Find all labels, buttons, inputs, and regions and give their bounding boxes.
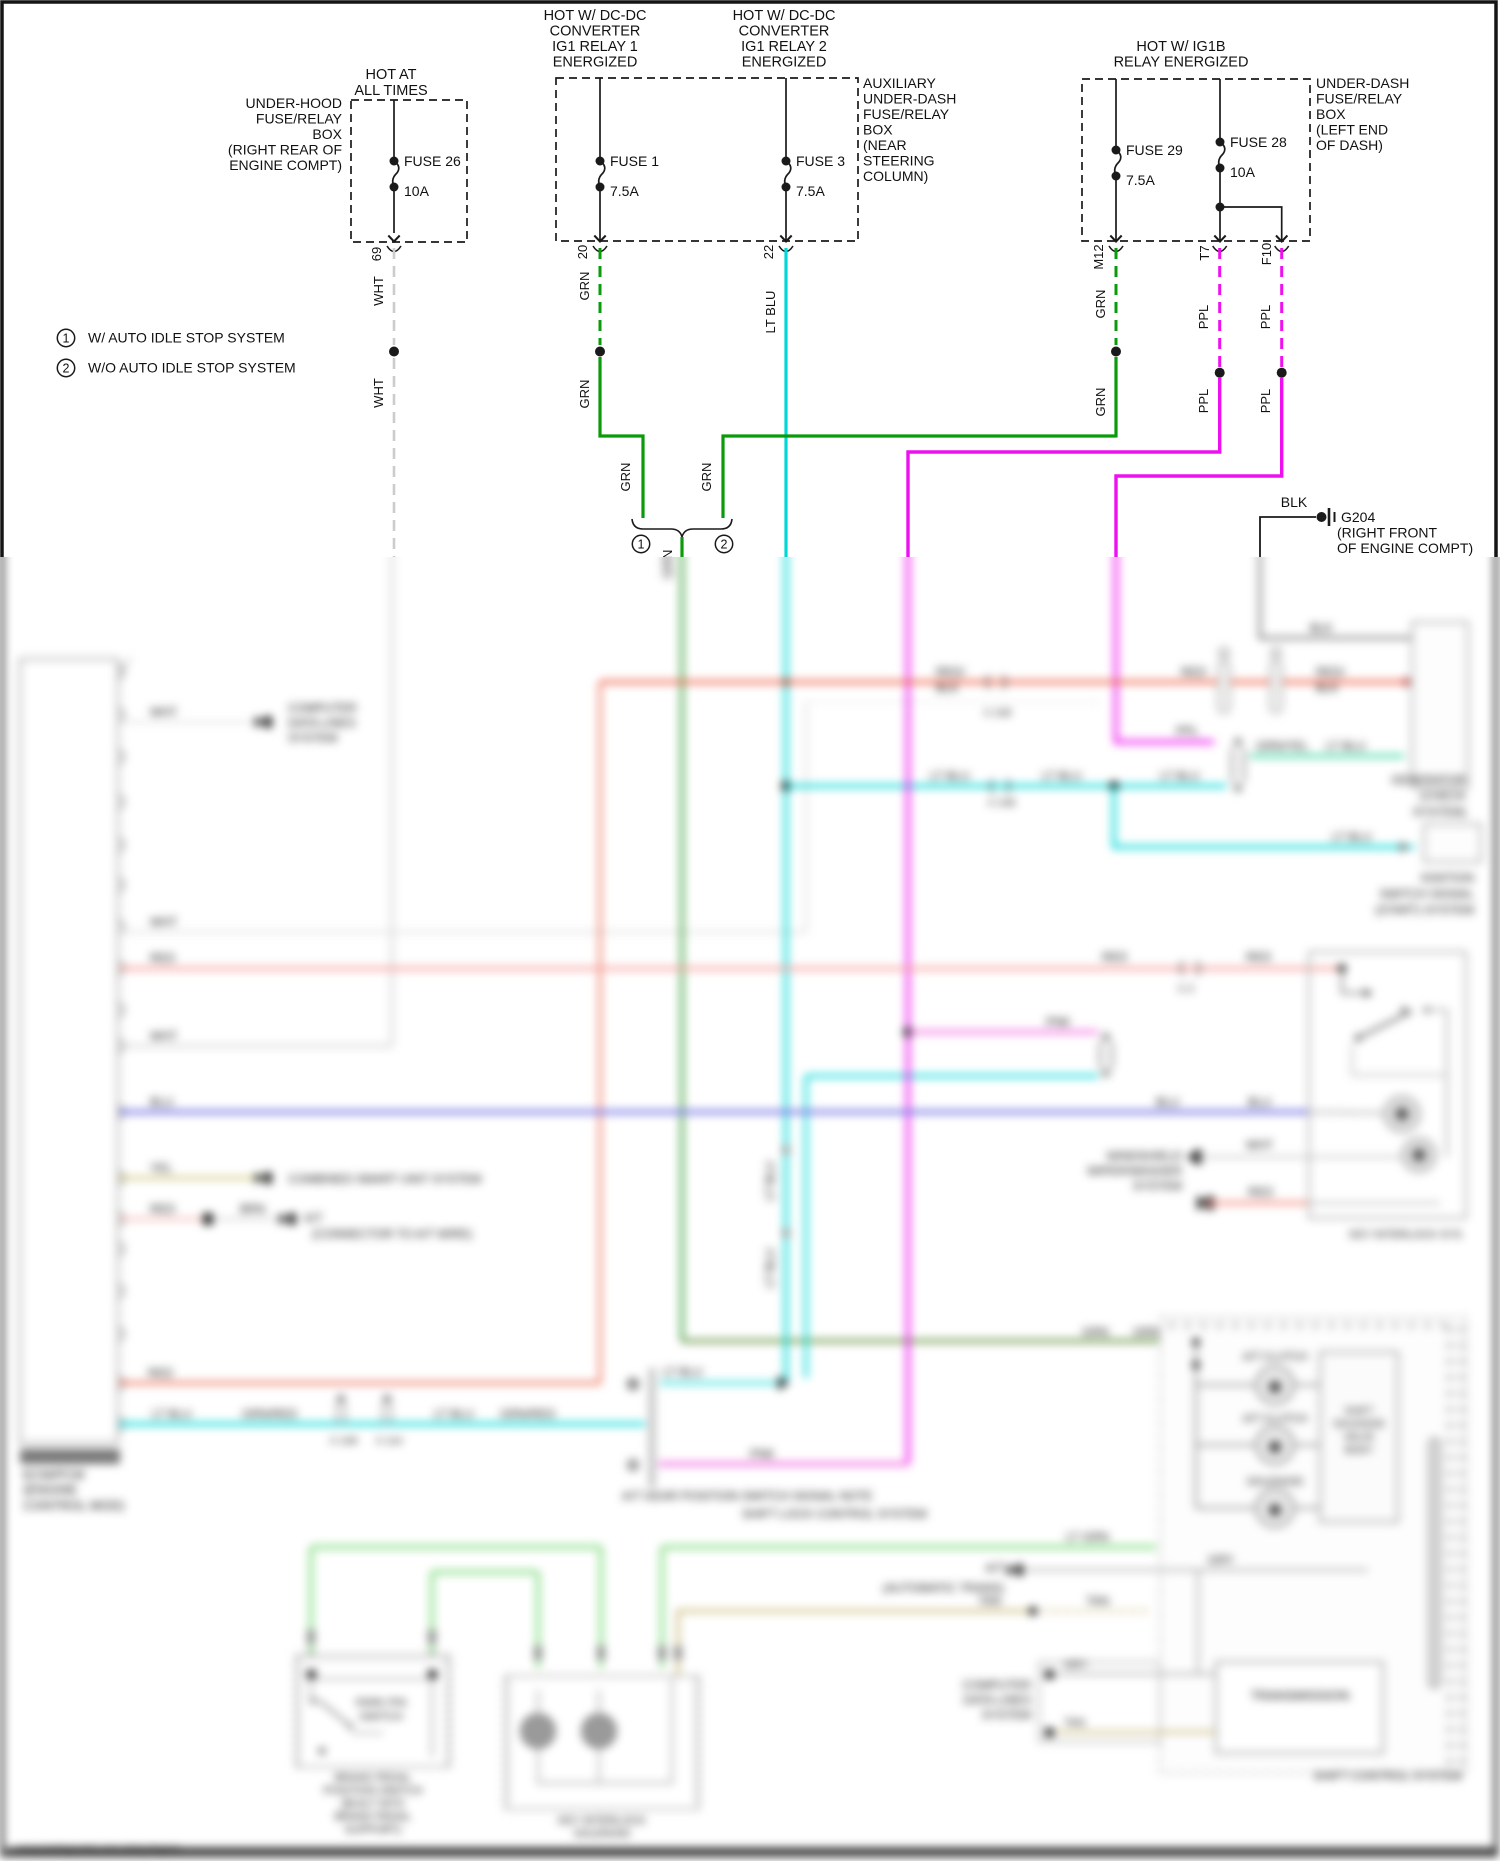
svg-text:HOT W/ IG1B: HOT W/ IG1B bbox=[1136, 39, 1225, 55]
svg-text:HOT W/ DC-DC: HOT W/ DC-DC bbox=[733, 8, 836, 24]
svg-text:ENGINE COMPT): ENGINE COMPT) bbox=[229, 157, 342, 173]
svg-text:KEY INTERLOCK: KEY INTERLOCK bbox=[558, 1815, 646, 1827]
svg-text:WHT: WHT bbox=[150, 705, 178, 719]
svg-text:FUSE 3: FUSE 3 bbox=[796, 153, 845, 169]
svg-text:WHT: WHT bbox=[1246, 1138, 1274, 1152]
svg-text:PPL: PPL bbox=[1176, 724, 1199, 738]
svg-text:WHT: WHT bbox=[150, 915, 178, 929]
svg-text:CONVERTER: CONVERTER bbox=[550, 24, 641, 40]
svg-text:GRN: GRN bbox=[699, 463, 714, 492]
svg-text:GRN: GRN bbox=[1082, 1325, 1109, 1339]
svg-text:SHIFT: SHIFT bbox=[1345, 1406, 1374, 1417]
svg-text:(CONNECTOR TO A/T WIRE): (CONNECTOR TO A/T WIRE) bbox=[312, 1227, 472, 1241]
svg-text:PNK: PNK bbox=[1046, 1015, 1071, 1029]
svg-text:ENERGIZED: ENERGIZED bbox=[553, 55, 638, 71]
svg-text:OF ENGINE COMPT): OF ENGINE COMPT) bbox=[1337, 540, 1473, 556]
svg-text:BOX: BOX bbox=[1316, 106, 1346, 122]
svg-text:GRN: GRN bbox=[660, 550, 675, 557]
svg-text:TAN: TAN bbox=[978, 1594, 1001, 1608]
svg-text:IGNITION: IGNITION bbox=[1421, 871, 1474, 885]
svg-text:SYSTEM: SYSTEM bbox=[288, 731, 337, 745]
svg-text:BLU: BLU bbox=[150, 1095, 173, 1109]
svg-text:COLUMN): COLUMN) bbox=[863, 168, 928, 184]
svg-text:7.5A: 7.5A bbox=[796, 183, 825, 199]
svg-text:RED: RED bbox=[1246, 950, 1272, 964]
svg-text:BLK: BLK bbox=[936, 681, 959, 695]
svg-text:T7: T7 bbox=[1197, 245, 1212, 260]
svg-text:DATA LINES: DATA LINES bbox=[288, 716, 356, 730]
svg-text:GRN/RED: GRN/RED bbox=[242, 1407, 298, 1421]
svg-text:COMPUTER: COMPUTER bbox=[962, 1678, 1031, 1692]
svg-text:(BUILT INTO: (BUILT INTO bbox=[342, 1798, 405, 1810]
svg-text:F10: F10 bbox=[1259, 243, 1274, 265]
svg-text:RELAY ENERGIZED: RELAY ENERGIZED bbox=[1114, 55, 1249, 71]
svg-text:KEY INTERLOCK SYS: KEY INTERLOCK SYS bbox=[1349, 1229, 1462, 1241]
svg-text:GRN: GRN bbox=[577, 380, 592, 409]
svg-text:IG1 RELAY 2: IG1 RELAY 2 bbox=[741, 39, 827, 55]
svg-text:FUSE 29: FUSE 29 bbox=[1126, 142, 1183, 158]
svg-text:AUXILIARY: AUXILIARY bbox=[863, 75, 937, 91]
svg-text:LT BLU: LT BLU bbox=[930, 769, 970, 783]
svg-text:PARK PIN: PARK PIN bbox=[356, 1697, 407, 1709]
svg-text:LT BLU: LT BLU bbox=[763, 1161, 777, 1201]
svg-text:LT BLU: LT BLU bbox=[152, 1407, 192, 1421]
svg-text:ENERGIZED: ENERGIZED bbox=[742, 55, 827, 71]
svg-text:PNK: PNK bbox=[750, 1447, 775, 1461]
svg-text:GRN: GRN bbox=[577, 272, 592, 301]
svg-text:C-108: C-108 bbox=[988, 798, 1016, 809]
svg-text:LT BLU: LT BLU bbox=[663, 1365, 703, 1379]
svg-text:LT GRN: LT GRN bbox=[1066, 1530, 1109, 1544]
svg-text:A/T CLUTCH: A/T CLUTCH bbox=[1243, 1351, 1308, 1363]
svg-text:COMPUTER: COMPUTER bbox=[288, 701, 357, 715]
svg-text:RED: RED bbox=[1181, 665, 1207, 679]
svg-text:PPL: PPL bbox=[1196, 305, 1211, 330]
svg-text:POSITION SWITCH: POSITION SWITCH bbox=[324, 1785, 423, 1797]
svg-text:SWITCH SIGNAL: SWITCH SIGNAL bbox=[1379, 887, 1474, 901]
svg-text:BLK: BLK bbox=[1316, 681, 1339, 695]
svg-text:CONTROL MOD): CONTROL MOD) bbox=[23, 1498, 124, 1513]
svg-text:(NEAR: (NEAR bbox=[863, 137, 907, 153]
svg-text:RED: RED bbox=[1102, 950, 1128, 964]
svg-text:PPL: PPL bbox=[1258, 305, 1273, 330]
svg-text:(RIGHT REAR OF: (RIGHT REAR OF bbox=[228, 142, 342, 158]
svg-text:LT BLU: LT BLU bbox=[1160, 769, 1200, 783]
svg-text:SHIFT CONTROL SYSTEM: SHIFT CONTROL SYSTEM bbox=[1313, 1769, 1462, 1783]
svg-text:GRN/RED: GRN/RED bbox=[500, 1407, 556, 1421]
svg-text:UNDER-DASH: UNDER-DASH bbox=[863, 91, 956, 107]
svg-text:RED: RED bbox=[148, 1366, 174, 1380]
svg-text:SOLENOID: SOLENOID bbox=[1333, 1419, 1385, 1430]
svg-text:RED: RED bbox=[1248, 1185, 1274, 1199]
svg-text:(START) SYSTEM: (START) SYSTEM bbox=[1375, 903, 1474, 917]
svg-text:G204: G204 bbox=[1341, 509, 1375, 525]
svg-text:C-108: C-108 bbox=[330, 1436, 358, 1447]
svg-text:W/ AUTO IDLE STOP SYSTEM: W/ AUTO IDLE STOP SYSTEM bbox=[88, 330, 285, 346]
svg-text:7.5A: 7.5A bbox=[1126, 172, 1155, 188]
svg-text:22: 22 bbox=[761, 245, 776, 259]
svg-text:A/T: A/T bbox=[304, 1211, 323, 1225]
svg-text:BRAKE PEDAL: BRAKE PEDAL bbox=[335, 1772, 411, 1784]
svg-text:GRN: GRN bbox=[660, 557, 675, 578]
svg-text:GENERATOR: GENERATOR bbox=[1391, 773, 1466, 787]
svg-text:10A: 10A bbox=[1230, 164, 1256, 180]
svg-text:LT BLU: LT BLU bbox=[1326, 739, 1366, 753]
svg-text:(AUTOMATIC TRANS): (AUTOMATIC TRANS) bbox=[883, 1581, 1004, 1595]
svg-text:ALL TIMES: ALL TIMES bbox=[354, 83, 427, 99]
svg-text:(RIGHT FRONT: (RIGHT FRONT bbox=[1337, 525, 1438, 541]
svg-text:WINDSHIELD: WINDSHIELD bbox=[1107, 1149, 1183, 1163]
svg-text:FUSE 28: FUSE 28 bbox=[1230, 134, 1287, 150]
svg-text:(CHECK: (CHECK bbox=[1420, 789, 1466, 803]
svg-text:10A: 10A bbox=[404, 183, 430, 199]
svg-text:SYSTEM: SYSTEM bbox=[1133, 1179, 1182, 1193]
svg-text:C-108: C-108 bbox=[984, 708, 1012, 719]
svg-text:UNDER-HOOD: UNDER-HOOD bbox=[246, 95, 342, 111]
svg-text:VALVE: VALVE bbox=[1344, 1432, 1375, 1443]
svg-text:A/T: A/T bbox=[985, 1561, 1004, 1575]
svg-text:WHT: WHT bbox=[371, 276, 386, 306]
svg-text:SWITCH: SWITCH bbox=[359, 1711, 402, 1723]
svg-text:C-2: C-2 bbox=[1178, 984, 1195, 995]
svg-text:LT BLU: LT BLU bbox=[763, 1248, 777, 1288]
svg-text:ECM/PCM: ECM/PCM bbox=[23, 1467, 84, 1482]
svg-text:FUSE/RELAY: FUSE/RELAY bbox=[863, 106, 950, 122]
svg-text:OF DASH): OF DASH) bbox=[1316, 137, 1383, 153]
svg-text:GRN: GRN bbox=[618, 463, 633, 492]
svg-text:TRANSMISSION: TRANSMISSION bbox=[1251, 1688, 1350, 1703]
svg-text:BLK: BLK bbox=[1281, 494, 1308, 510]
svg-text:LT BLU: LT BLU bbox=[1332, 830, 1372, 844]
svg-text:BOX: BOX bbox=[863, 122, 893, 138]
svg-text:1: 1 bbox=[63, 332, 70, 346]
svg-text:PPL: PPL bbox=[1196, 389, 1211, 414]
svg-text:RED: RED bbox=[150, 1202, 176, 1216]
svg-text:WHT: WHT bbox=[371, 378, 386, 408]
svg-text:LT BLU: LT BLU bbox=[763, 291, 778, 334]
svg-text:LT BLU: LT BLU bbox=[1042, 769, 1082, 783]
svg-text:FUSE/RELAY: FUSE/RELAY bbox=[1316, 91, 1403, 107]
svg-text:69: 69 bbox=[369, 247, 384, 261]
svg-text:SHIFT LOCK CONTROL SYSTEM: SHIFT LOCK CONTROL SYSTEM bbox=[742, 1507, 927, 1521]
svg-text:SUPPORT): SUPPORT) bbox=[345, 1824, 402, 1836]
svg-text:LT BLU: LT BLU bbox=[434, 1407, 474, 1421]
svg-text:DATA LINES: DATA LINES bbox=[963, 1693, 1031, 1707]
svg-text:M12: M12 bbox=[1091, 244, 1106, 269]
svg-text:7.5A: 7.5A bbox=[610, 183, 639, 199]
svg-text:C-114: C-114 bbox=[376, 1436, 403, 1447]
svg-text:BODY: BODY bbox=[1345, 1445, 1374, 1456]
svg-text:YEL: YEL bbox=[150, 1161, 173, 1175]
svg-text:BRAKE PEDAL: BRAKE PEDAL bbox=[335, 1811, 411, 1823]
svg-text:SYSTEM): SYSTEM) bbox=[1413, 805, 1466, 819]
svg-text:BLU: BLU bbox=[1156, 1095, 1179, 1109]
svg-text:WIPER/WASHER: WIPER/WASHER bbox=[1087, 1164, 1182, 1178]
svg-text:TAN: TAN bbox=[1064, 1717, 1085, 1729]
svg-text:HOT AT: HOT AT bbox=[365, 67, 416, 83]
svg-text:HOT W/ DC-DC: HOT W/ DC-DC bbox=[544, 8, 647, 24]
svg-text:2: 2 bbox=[63, 362, 70, 376]
svg-text:20: 20 bbox=[575, 245, 590, 259]
svg-text:(LEFT END: (LEFT END bbox=[1316, 122, 1388, 138]
svg-text:W/O AUTO IDLE STOP SYSTEM: W/O AUTO IDLE STOP SYSTEM bbox=[88, 360, 296, 376]
svg-text:FUSE 26: FUSE 26 bbox=[404, 153, 461, 169]
svg-text:RED/: RED/ bbox=[936, 665, 965, 679]
svg-text:SOLENOID: SOLENOID bbox=[1247, 1476, 1304, 1488]
svg-text:RED: RED bbox=[150, 951, 176, 965]
svg-text:BLU: BLU bbox=[1248, 1095, 1271, 1109]
svg-text:2: 2 bbox=[721, 538, 728, 552]
svg-text:easyautodiagnostics.com wiring: easyautodiagnostics.com wiring diagram bbox=[18, 1843, 180, 1853]
svg-text:RED/: RED/ bbox=[1316, 665, 1345, 679]
svg-text:FUSE/RELAY: FUSE/RELAY bbox=[256, 111, 343, 127]
svg-text:WHT: WHT bbox=[150, 1029, 178, 1043]
svg-text:BRN: BRN bbox=[240, 1202, 265, 1216]
svg-text:FUSE 1: FUSE 1 bbox=[610, 153, 659, 169]
svg-text:A/T GEAR POSITION SWITCH SIGNA: A/T GEAR POSITION SWITCH SIGNAL NOTE bbox=[622, 1489, 873, 1503]
svg-text:(ENGINE: (ENGINE bbox=[23, 1482, 78, 1497]
svg-text:1: 1 bbox=[638, 538, 645, 552]
svg-text:BOX: BOX bbox=[312, 126, 342, 142]
svg-text:PPL: PPL bbox=[1258, 389, 1273, 414]
svg-text:UNDER-DASH: UNDER-DASH bbox=[1316, 75, 1409, 91]
svg-text:BLK: BLK bbox=[1310, 621, 1333, 635]
svg-text:GRN: GRN bbox=[1093, 290, 1108, 319]
svg-text:GRY: GRY bbox=[1208, 1553, 1234, 1567]
svg-text:STEERING: STEERING bbox=[863, 153, 935, 169]
svg-text:TAN: TAN bbox=[1086, 1594, 1109, 1608]
svg-text:IG1 RELAY 1: IG1 RELAY 1 bbox=[552, 39, 638, 55]
svg-text:CONVERTER: CONVERTER bbox=[739, 24, 830, 40]
svg-text:SYSTEM: SYSTEM bbox=[982, 1708, 1031, 1722]
svg-text:COMBINED SMART UNIT SYSTEM: COMBINED SMART UNIT SYSTEM bbox=[288, 1172, 481, 1186]
svg-text:GRY: GRY bbox=[1064, 1659, 1088, 1671]
svg-text:GRN: GRN bbox=[1133, 1325, 1160, 1339]
svg-text:SOLENOID: SOLENOID bbox=[574, 1828, 631, 1840]
svg-text:GRN/YEL: GRN/YEL bbox=[1256, 739, 1309, 753]
svg-text:GRN: GRN bbox=[1093, 388, 1108, 417]
svg-text:A/T CLUTCH: A/T CLUTCH bbox=[1243, 1413, 1308, 1425]
